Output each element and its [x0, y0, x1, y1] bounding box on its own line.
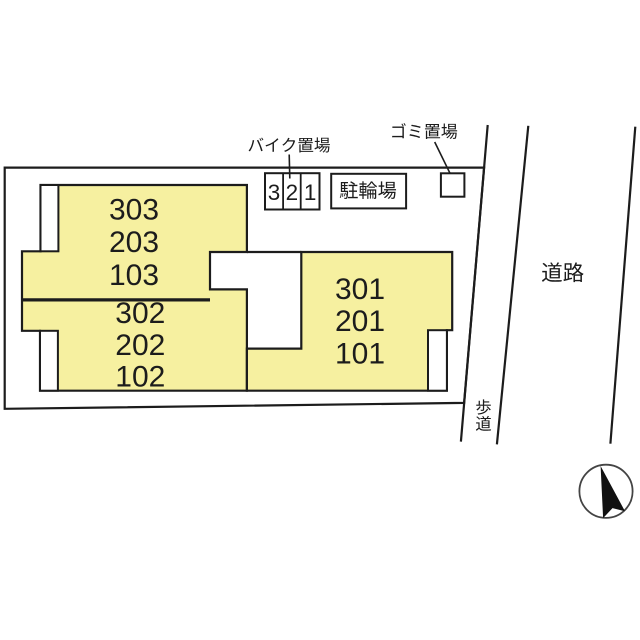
- svg-text:102: 102: [115, 361, 165, 394]
- svg-text:201: 201: [335, 305, 385, 338]
- svg-text:202: 202: [115, 329, 165, 362]
- svg-text:303: 303: [109, 194, 159, 227]
- svg-text:301: 301: [335, 273, 385, 306]
- svg-text:203: 203: [109, 226, 159, 259]
- svg-text:302: 302: [115, 297, 165, 330]
- svg-text:2: 2: [286, 180, 299, 205]
- svg-text:3: 3: [268, 180, 281, 205]
- svg-text:1: 1: [304, 180, 317, 205]
- svg-text:101: 101: [335, 337, 385, 370]
- svg-text:103: 103: [109, 259, 159, 292]
